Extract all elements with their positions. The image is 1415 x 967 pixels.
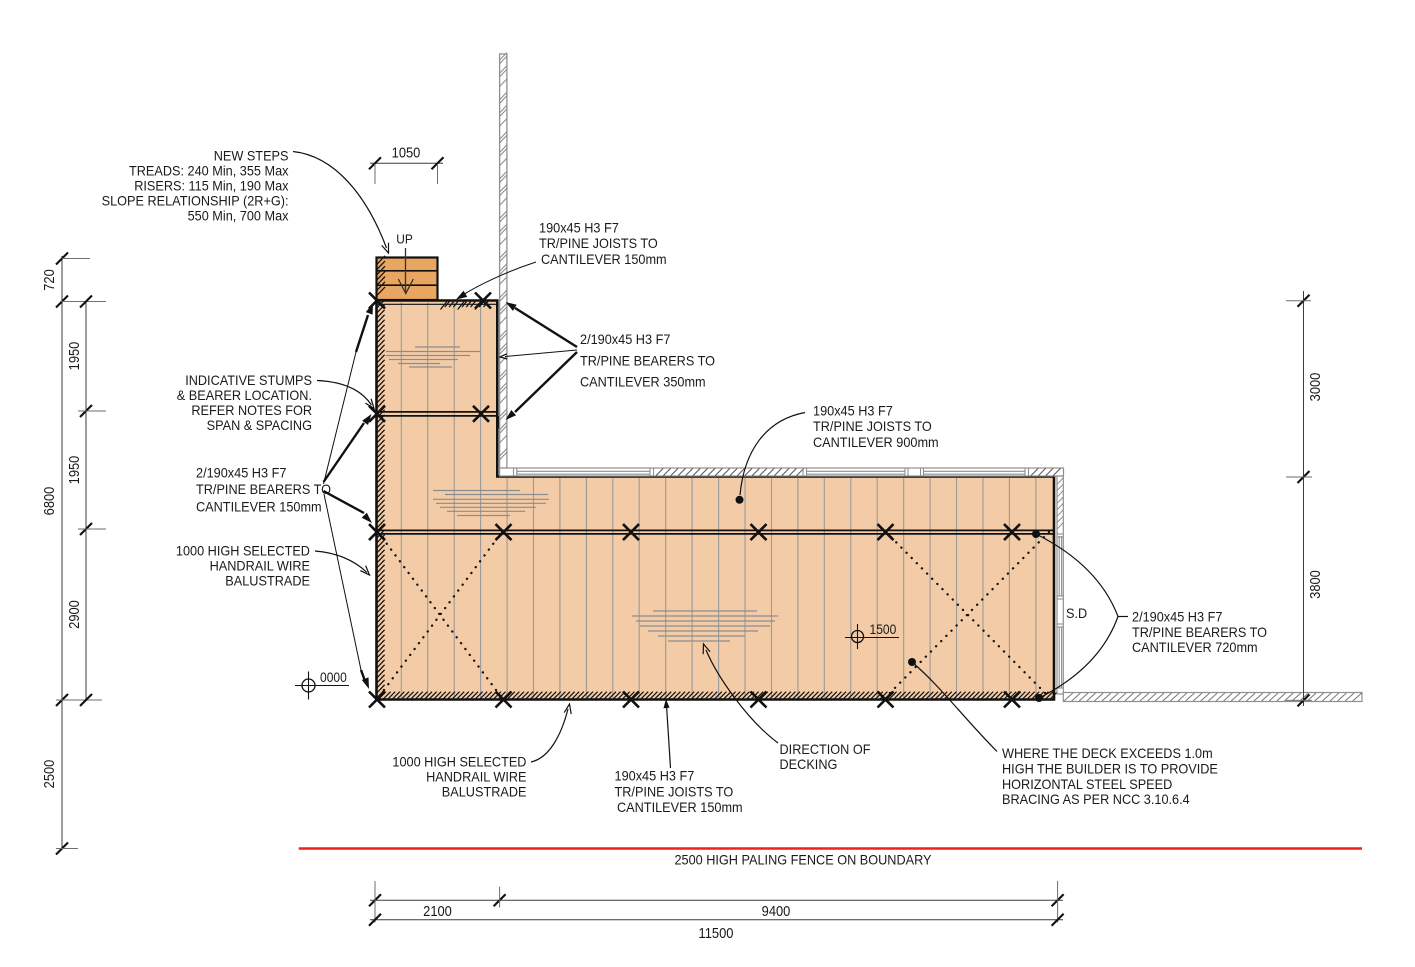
svg-text:720: 720 — [41, 269, 58, 291]
svg-text:3000: 3000 — [1307, 373, 1324, 402]
svg-text:HIGH THE BUILDER IS TO PROVIDE: HIGH THE BUILDER IS TO PROVIDE — [1002, 761, 1218, 777]
svg-text:TREADS: 240 Min, 355 Max: TREADS: 240 Min, 355 Max — [129, 163, 289, 179]
svg-text:& BEARER LOCATION.: & BEARER LOCATION. — [177, 387, 312, 403]
svg-text:TR/PINE BEARERS TO: TR/PINE BEARERS TO — [580, 353, 715, 369]
svg-text:TR/PINE JOISTS TO: TR/PINE JOISTS TO — [539, 235, 658, 251]
svg-text:190x45 H3 F7: 190x45 H3 F7 — [813, 403, 893, 419]
svg-text:1950: 1950 — [66, 342, 83, 371]
svg-text:1500: 1500 — [870, 621, 897, 637]
svg-text:2100: 2100 — [423, 903, 452, 920]
svg-text:TR/PINE JOISTS TO: TR/PINE JOISTS TO — [615, 783, 734, 799]
svg-text:BRACING AS PER NCC 3.10.6.4: BRACING AS PER NCC 3.10.6.4 — [1002, 791, 1190, 807]
svg-text:WHERE THE DECK EXCEEDS 1.0m: WHERE THE DECK EXCEEDS 1.0m — [1002, 745, 1213, 761]
svg-text:TR/PINE JOISTS TO: TR/PINE JOISTS TO — [813, 418, 932, 434]
svg-text:190x45 H3 F7: 190x45 H3 F7 — [539, 220, 619, 236]
svg-text:CANTILEVER 150mm: CANTILEVER 150mm — [541, 251, 667, 267]
svg-text:HANDRAIL WIRE: HANDRAIL WIRE — [426, 769, 526, 785]
svg-text:INDICATIVE STUMPS: INDICATIVE STUMPS — [185, 372, 312, 388]
svg-text:HANDRAIL WIRE: HANDRAIL WIRE — [210, 558, 310, 574]
svg-text:CANTILEVER 350mm: CANTILEVER 350mm — [580, 374, 706, 390]
svg-text:SPAN & SPACING: SPAN & SPACING — [207, 417, 312, 433]
svg-text:2/190x45 H3 F7: 2/190x45 H3 F7 — [1132, 609, 1223, 625]
svg-text:S.D: S.D — [1066, 605, 1087, 621]
svg-text:DECKING: DECKING — [780, 756, 838, 772]
svg-text:1950: 1950 — [66, 456, 83, 485]
svg-text:CANTILEVER 150mm: CANTILEVER 150mm — [617, 799, 743, 815]
svg-text:CANTILEVER 150mm: CANTILEVER 150mm — [196, 498, 322, 514]
svg-text:RISERS: 115 Min, 190 Max: RISERS: 115 Min, 190 Max — [134, 178, 288, 194]
svg-text:2500: 2500 — [41, 760, 58, 789]
svg-text:1000 HIGH SELECTED: 1000 HIGH SELECTED — [176, 543, 310, 559]
svg-text:SLOPE RELATIONSHIP (2R+G):: SLOPE RELATIONSHIP (2R+G): — [102, 193, 289, 209]
svg-text:190x45 H3 F7: 190x45 H3 F7 — [615, 768, 695, 784]
svg-text:6800: 6800 — [41, 487, 58, 516]
svg-text:2/190x45 H3 F7: 2/190x45 H3 F7 — [196, 464, 287, 480]
svg-text:2500 HIGH PALING FENCE ON BOUN: 2500 HIGH PALING FENCE ON BOUNDARY — [674, 852, 932, 868]
svg-text:BALUSTRADE: BALUSTRADE — [225, 573, 310, 589]
svg-text:0000: 0000 — [320, 669, 347, 685]
svg-text:1050: 1050 — [392, 145, 421, 162]
svg-text:TR/PINE BEARERS TO: TR/PINE BEARERS TO — [1132, 624, 1267, 640]
svg-text:2/190x45 H3 F7: 2/190x45 H3 F7 — [580, 331, 671, 347]
svg-text:NEW STEPS: NEW STEPS — [214, 148, 289, 164]
svg-text:9400: 9400 — [762, 903, 791, 920]
svg-text:2900: 2900 — [66, 600, 83, 629]
svg-text:550 Min, 700 Max: 550 Min, 700 Max — [188, 208, 289, 224]
svg-text:CANTILEVER 720mm: CANTILEVER 720mm — [1132, 639, 1258, 655]
svg-text:TR/PINE BEARERS TO: TR/PINE BEARERS TO — [196, 481, 331, 497]
svg-text:3800: 3800 — [1307, 570, 1324, 599]
svg-text:HORIZONTAL STEEL SPEED: HORIZONTAL STEEL SPEED — [1002, 776, 1172, 792]
svg-text:DIRECTION OF: DIRECTION OF — [780, 741, 871, 757]
svg-text:UP: UP — [396, 232, 413, 247]
svg-text:1000 HIGH SELECTED: 1000 HIGH SELECTED — [392, 754, 526, 770]
svg-text:CANTILEVER 900mm: CANTILEVER 900mm — [813, 434, 939, 450]
svg-text:REFER NOTES FOR: REFER NOTES FOR — [191, 402, 312, 418]
svg-text:BALUSTRADE: BALUSTRADE — [442, 784, 527, 800]
svg-text:11500: 11500 — [699, 925, 734, 942]
